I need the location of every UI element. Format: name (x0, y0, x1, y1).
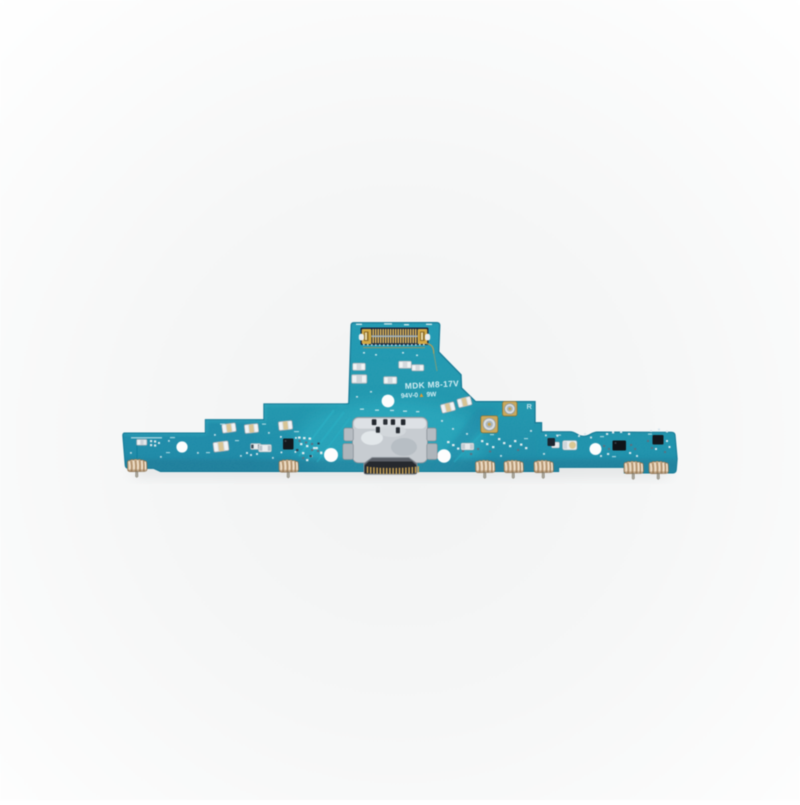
svg-text:R: R (527, 402, 533, 411)
